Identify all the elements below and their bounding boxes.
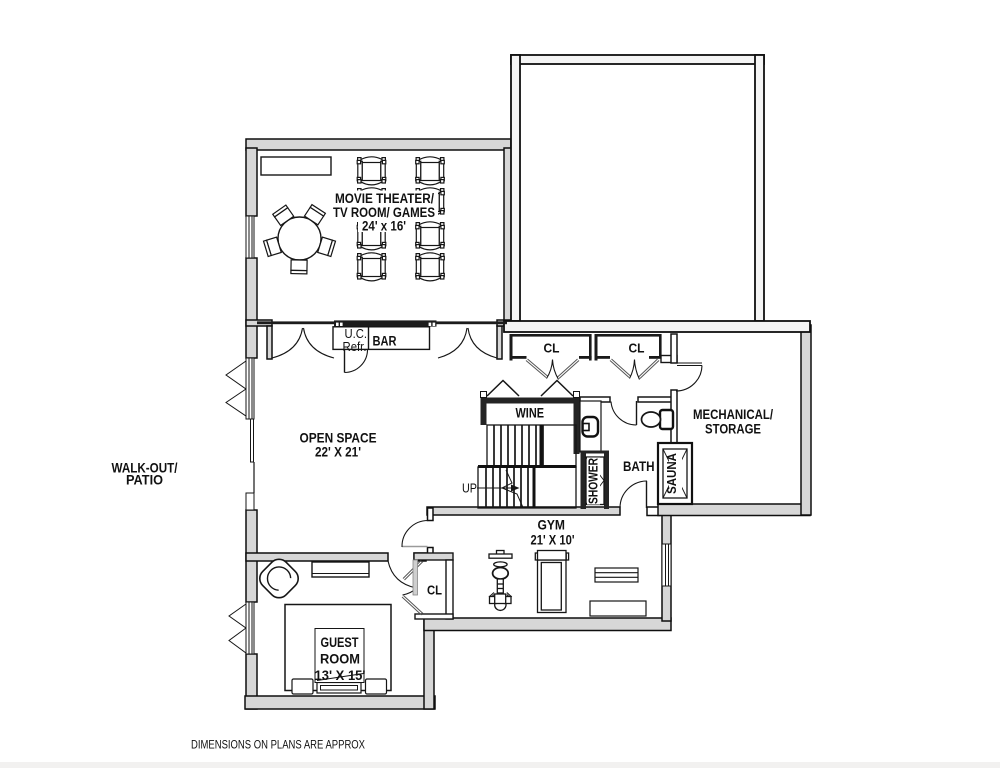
svg-text:BATH: BATH xyxy=(623,459,655,474)
svg-text:GYM: GYM xyxy=(538,518,566,533)
svg-text:DIMENSIONS ON PLANS ARE APPROX: DIMENSIONS ON PLANS ARE APPROX xyxy=(191,738,365,752)
svg-text:PATIO: PATIO xyxy=(126,473,163,488)
svg-text:UP: UP xyxy=(462,482,477,496)
svg-text:CL: CL xyxy=(427,584,442,598)
svg-text:Refr.: Refr. xyxy=(343,340,367,354)
svg-text:CL: CL xyxy=(629,341,645,356)
svg-text:24' x 16': 24' x 16' xyxy=(362,219,406,234)
svg-text:MECHANICAL/: MECHANICAL/ xyxy=(693,407,773,422)
svg-text:MOVIE THEATER/: MOVIE THEATER/ xyxy=(335,191,434,206)
svg-text:OPEN SPACE: OPEN SPACE xyxy=(300,431,377,446)
svg-text:13' X 15': 13' X 15' xyxy=(315,668,366,683)
svg-text:21' X 10': 21' X 10' xyxy=(531,533,575,548)
svg-text:CL: CL xyxy=(544,341,560,356)
svg-text:SHOWER: SHOWER xyxy=(587,458,601,504)
svg-text:22' X 21': 22' X 21' xyxy=(315,445,361,460)
svg-text:ROOM: ROOM xyxy=(320,652,360,667)
svg-text:GUEST: GUEST xyxy=(321,635,360,650)
svg-text:BAR: BAR xyxy=(373,334,397,349)
svg-text:U.C.: U.C. xyxy=(345,327,368,341)
svg-text:WINE: WINE xyxy=(516,406,545,421)
svg-text:STORAGE: STORAGE xyxy=(705,422,761,437)
svg-text:SAUNA: SAUNA xyxy=(665,453,679,494)
